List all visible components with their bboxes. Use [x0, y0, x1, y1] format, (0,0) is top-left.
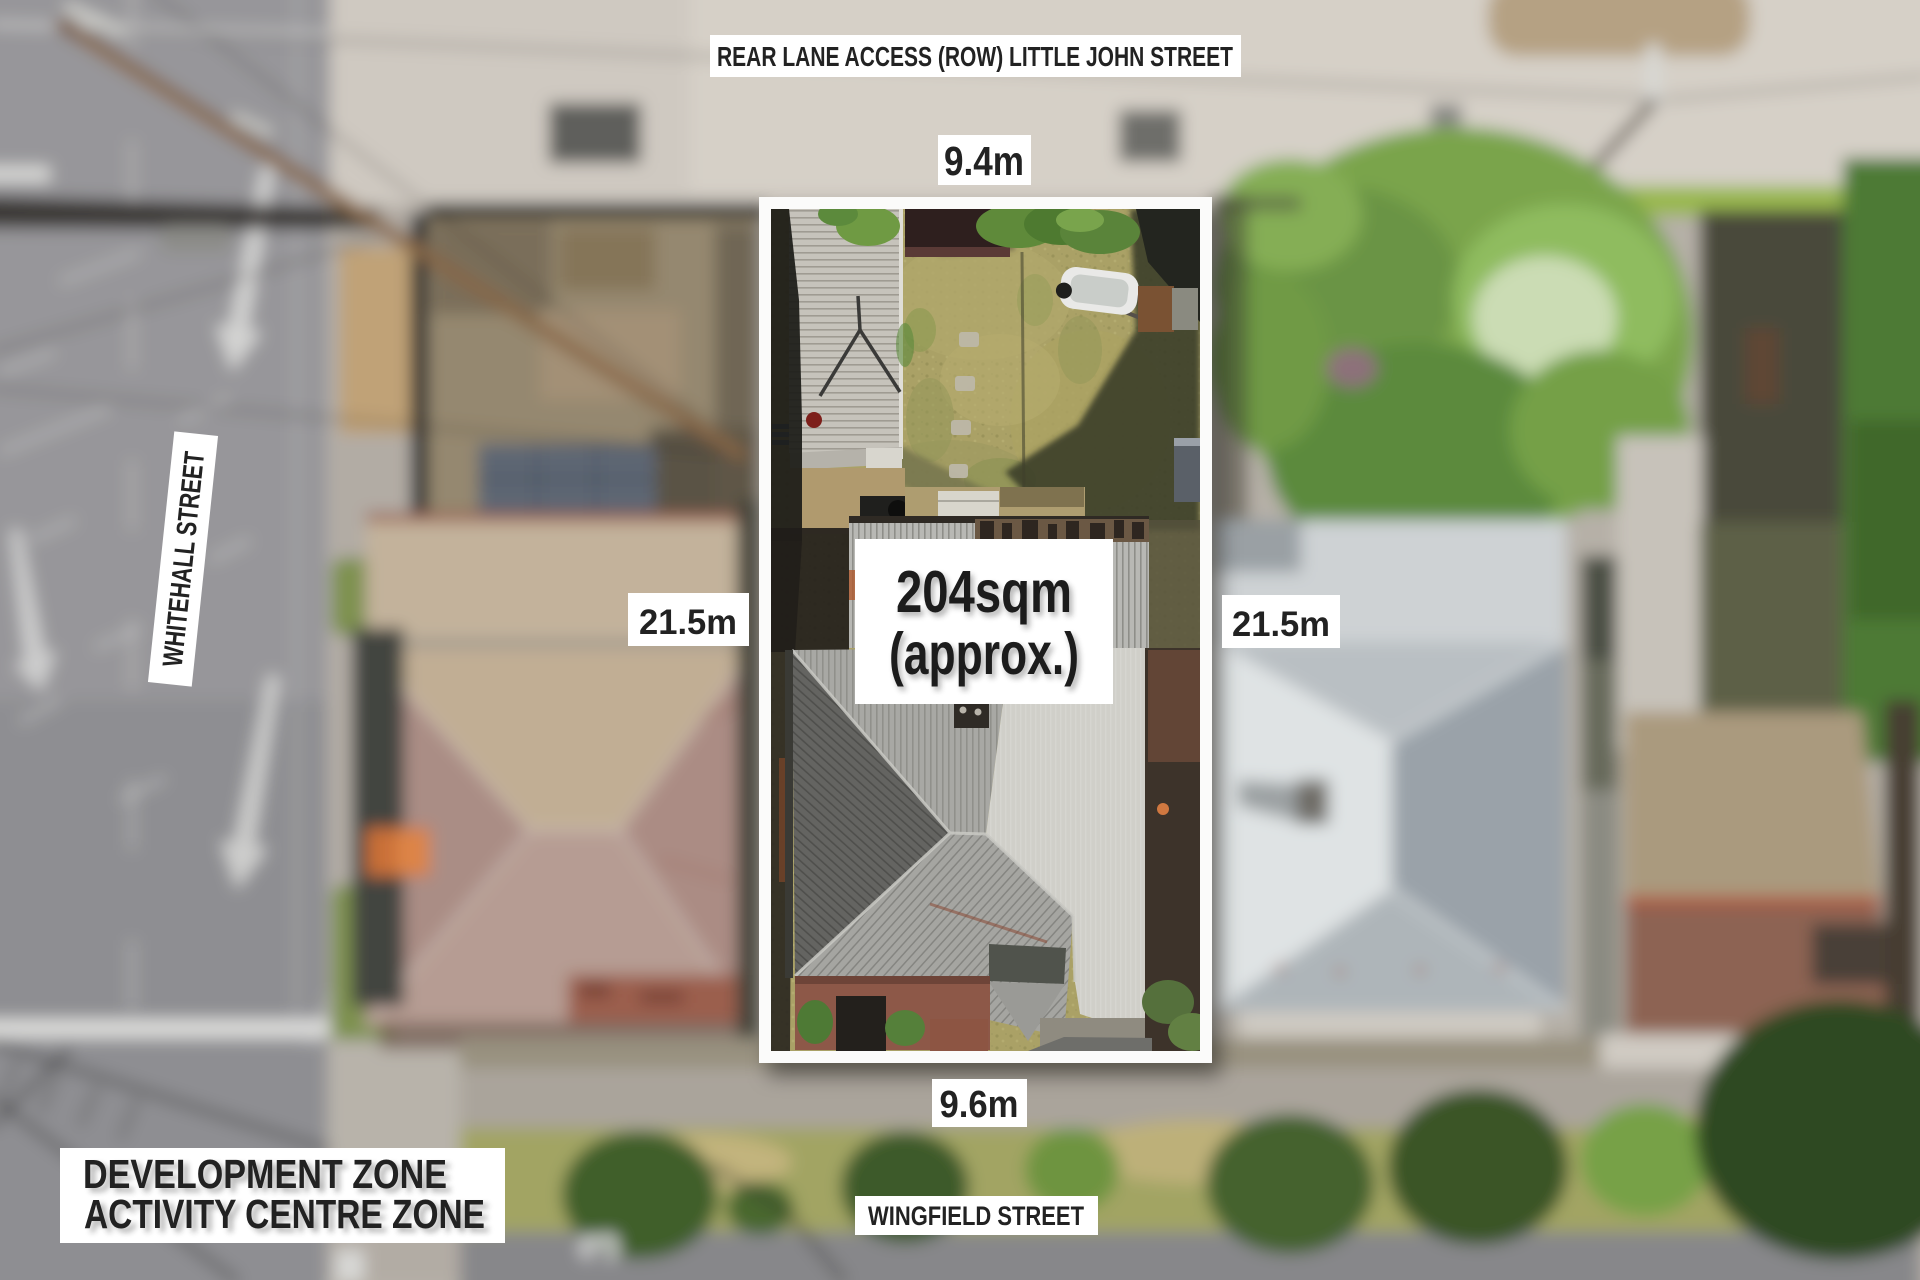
svg-text:REAR LANE ACCESS (ROW) LITTLE: REAR LANE ACCESS (ROW) LITTLE JOHN STREE… — [717, 41, 1233, 72]
svg-text:ACTIVITY CENTRE ZONE: ACTIVITY CENTRE ZONE — [84, 1191, 485, 1237]
svg-text:21.5m: 21.5m — [639, 603, 737, 642]
svg-text:WINGFIELD STREET: WINGFIELD STREET — [868, 1201, 1084, 1231]
svg-text:(approx.): (approx.) — [889, 621, 1079, 687]
svg-text:204sqm: 204sqm — [896, 559, 1072, 625]
svg-text:9.4m: 9.4m — [944, 138, 1024, 184]
svg-text:21.5m: 21.5m — [1232, 605, 1330, 644]
svg-text:3: 3 — [570, 1232, 630, 1262]
svg-text:9.6m: 9.6m — [940, 1084, 1019, 1126]
